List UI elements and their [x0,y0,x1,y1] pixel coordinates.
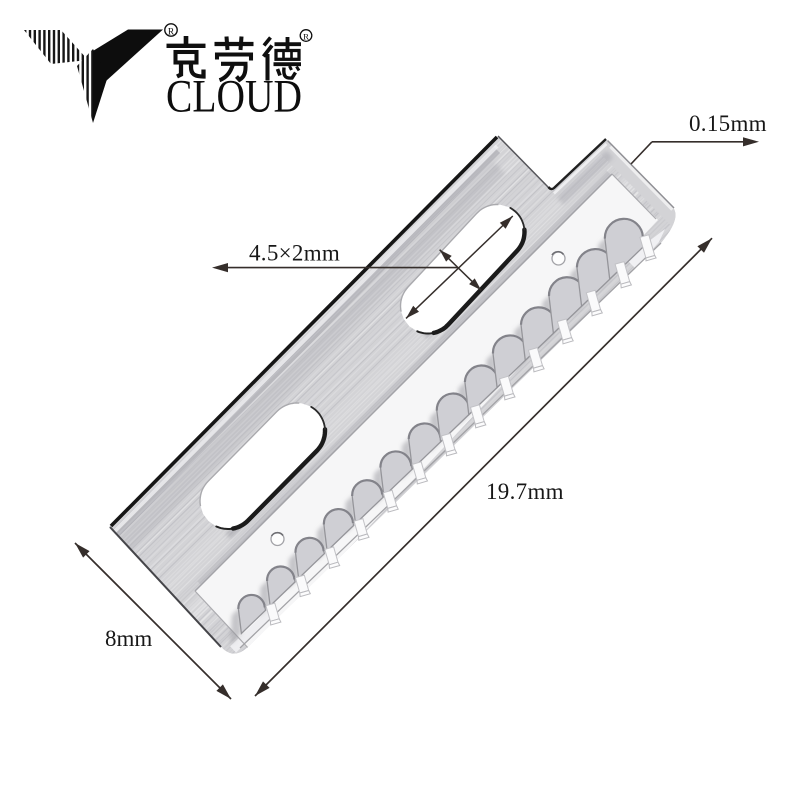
svg-text:19.7mm: 19.7mm [486,479,564,504]
svg-text:8mm: 8mm [105,626,152,651]
svg-text:CLOUD: CLOUD [166,72,302,123]
svg-text:4.5×2mm: 4.5×2mm [249,241,340,266]
svg-text:R: R [168,28,175,38]
svg-text:0.15mm: 0.15mm [689,111,767,136]
svg-text:R: R [303,32,309,42]
